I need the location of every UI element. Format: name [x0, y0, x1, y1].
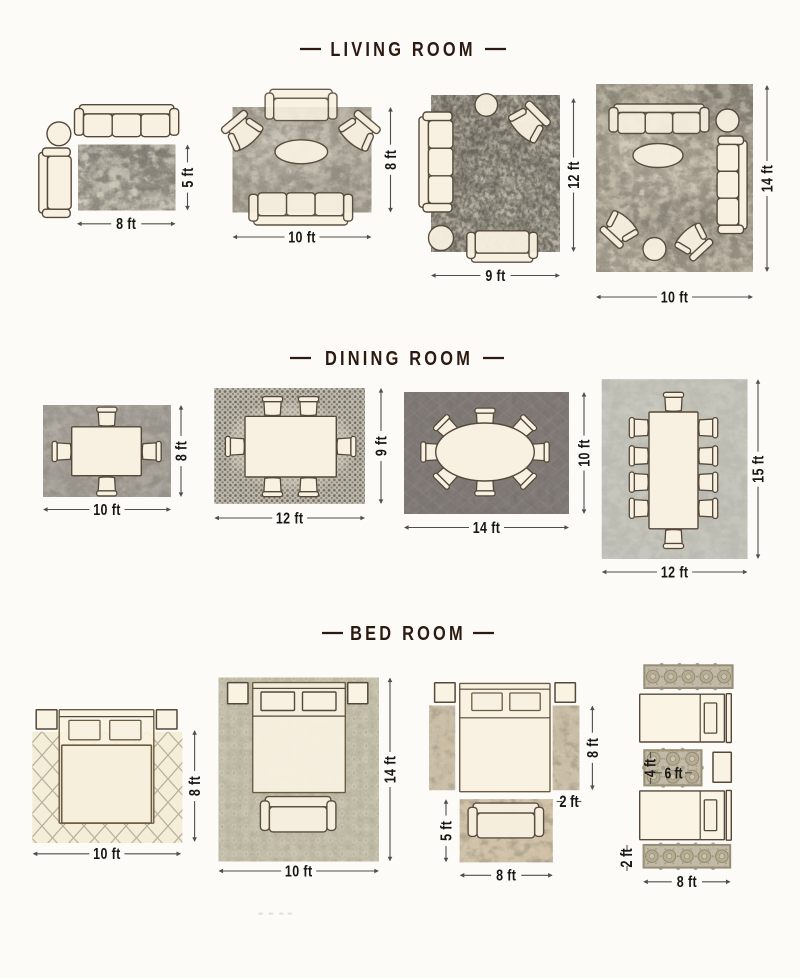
svg-text:8 ft: 8 ft — [173, 441, 191, 461]
svg-text:15 ft: 15 ft — [750, 455, 768, 483]
svg-text:9 ft: 9 ft — [373, 436, 391, 456]
svg-text:DINING ROOM: DINING ROOM — [325, 346, 473, 369]
svg-text:10 ft: 10 ft — [661, 289, 689, 307]
svg-text:BED ROOM: BED ROOM — [350, 621, 466, 644]
svg-text:8 ft: 8 ft — [383, 150, 401, 170]
svg-text:10 ft: 10 ft — [93, 846, 121, 864]
svg-text:LIVING ROOM: LIVING ROOM — [330, 37, 475, 60]
svg-text:8 ft: 8 ft — [677, 874, 697, 892]
svg-text:8 ft: 8 ft — [496, 867, 516, 885]
svg-text:12 ft: 12 ft — [566, 161, 584, 189]
svg-text:8 ft: 8 ft — [584, 738, 602, 758]
svg-text:5 ft: 5 ft — [438, 821, 456, 841]
svg-text:10 ft: 10 ft — [576, 439, 594, 467]
svg-text:10 ft: 10 ft — [288, 229, 316, 247]
svg-text:8 ft: 8 ft — [187, 776, 205, 796]
svg-text:2 ft: 2 ft — [619, 848, 637, 867]
svg-text:4 ft: 4 ft — [641, 759, 659, 777]
svg-text:8 ft: 8 ft — [116, 216, 136, 234]
svg-text:14 ft: 14 ft — [473, 520, 501, 538]
svg-text:9 ft: 9 ft — [485, 268, 505, 286]
svg-text:5 ft: 5 ft — [180, 167, 198, 187]
svg-text:12 ft: 12 ft — [661, 564, 689, 582]
svg-text:2 ft: 2 ft — [559, 794, 578, 812]
svg-text:10 ft: 10 ft — [93, 502, 121, 520]
svg-text:10 ft: 10 ft — [285, 863, 313, 881]
svg-text:14 ft: 14 ft — [759, 165, 777, 193]
svg-text:12 ft: 12 ft — [276, 510, 304, 528]
svg-text:6 ft: 6 ft — [664, 764, 682, 782]
svg-text:14 ft: 14 ft — [382, 756, 400, 784]
